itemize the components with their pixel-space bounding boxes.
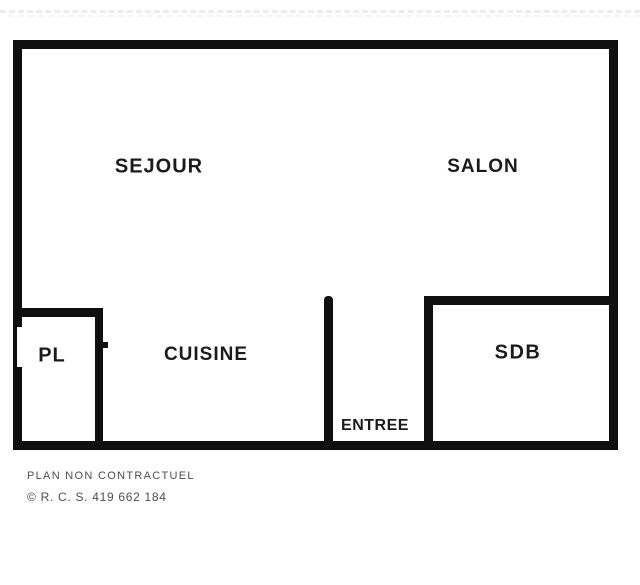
wall-outer-bottom: [13, 441, 618, 450]
wall-pl-right: [95, 308, 103, 450]
pl-door-tick: [103, 342, 108, 348]
pl-door-opening: [17, 327, 22, 367]
room-label-pl: PL: [38, 345, 66, 368]
room-label-sdb: SDB: [495, 342, 542, 365]
room-label-sejour: SEJOUR: [115, 156, 203, 179]
floor-plan-page: SEJOUR SALON PL CUISINE SDB ENTREE PLAN …: [0, 0, 640, 585]
room-label-cuisine: CUISINE: [164, 344, 248, 366]
wall-outer-top: [13, 40, 618, 49]
wall-pl-top: [13, 308, 103, 317]
room-label-entree: ENTREE: [341, 417, 409, 435]
wall-sdb-left: [424, 296, 433, 450]
room-label-salon: SALON: [447, 156, 519, 178]
wall-entree-left: [324, 296, 333, 450]
wall-outer-left: [13, 40, 22, 450]
rcs-number-text: © R. C. S. 419 662 184: [27, 490, 167, 504]
disclaimer-text: PLAN NON CONTRACTUEL: [27, 470, 195, 482]
wall-outer-right: [609, 40, 618, 450]
top-dashed-artifact-line-2: [8, 15, 640, 17]
top-dashed-artifact-line: [0, 10, 640, 13]
wall-sdb-top: [424, 296, 618, 305]
